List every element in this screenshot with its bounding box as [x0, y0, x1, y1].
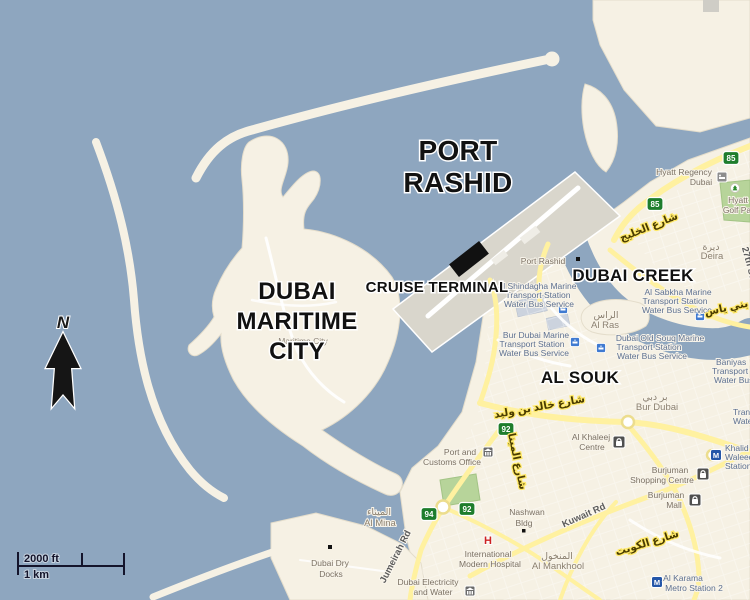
shopping-bag-icon: [613, 436, 625, 448]
water-bus-icon: [571, 338, 580, 347]
metro-glyph: M: [654, 578, 660, 587]
annotation-maritime-city-3: CITY: [269, 338, 325, 365]
label-line: Bur Dubai: [636, 402, 678, 413]
label-line: Mall: [666, 500, 682, 510]
label-line: Al Mankhool: [532, 561, 584, 572]
annotation-maritime-city-1: DUBAI: [258, 278, 336, 305]
roundabout: [437, 501, 450, 514]
label-line: Burjuman: [652, 465, 689, 475]
label-line: Modern Hospital: [459, 559, 521, 569]
shopping-bag-icon: [689, 494, 701, 506]
metro-icon: M: [652, 577, 663, 588]
label-line: Dubai Dry: [311, 558, 350, 568]
label-line: Station: [725, 461, 750, 471]
label-khalid-station: Khalid Waleed Station: [725, 443, 750, 471]
label-line: Hyatt: [728, 195, 748, 205]
label-line: Water Bus Service: [504, 299, 574, 309]
scale-imperial: 2000 ft: [24, 553, 59, 565]
label-line: Al Ras: [591, 320, 619, 331]
label-line: Dubai: [690, 177, 712, 187]
poi-dot: [328, 545, 332, 549]
hotel-icon: [717, 172, 727, 182]
label-line: Water Bus Service: [499, 348, 569, 358]
label-shindagha-station: Al Shindagha Marine Transport Station Wa…: [498, 281, 577, 309]
label-baniyas-station: Baniyas Transport Water Bus: [712, 357, 750, 385]
route-shield-94: 94: [421, 508, 437, 521]
label-line: Docks: [319, 569, 343, 579]
label-line: Water Bus: [733, 416, 750, 426]
annotation-port-rashid-1: PORT: [419, 135, 498, 166]
north-label: N: [57, 313, 70, 332]
label-line: Water Bus Service: [642, 305, 712, 315]
label-line: Centre: [579, 442, 605, 452]
annotation-cruise-terminal: CRUISE TERMINAL: [366, 279, 509, 296]
water-bus-icon: [597, 344, 606, 353]
dubai-port-map: 85 85 94 92 92 M M: [0, 0, 750, 600]
shield-number: 94: [425, 510, 434, 519]
poi-dot: [522, 529, 526, 533]
label-line: Al Mina: [364, 518, 396, 529]
label-line: Golf Pa: [723, 205, 750, 215]
label-line: Water Bus Service: [617, 351, 687, 361]
poi-dot: [576, 257, 580, 261]
label-line: Metro Station 2: [665, 583, 723, 593]
label-line: Port and: [444, 447, 476, 457]
label-line: Al Karama: [663, 573, 703, 583]
building-icon: [465, 586, 475, 596]
label-line: الميناء: [367, 507, 391, 518]
label-al-ras: الراس Al Ras: [591, 310, 619, 331]
metro-glyph: M: [713, 451, 719, 460]
label-line: Burjuman: [648, 490, 685, 500]
route-shield-85: 85: [723, 152, 739, 165]
route-shield-85: 85: [647, 198, 663, 211]
annotation-port-rashid-2: RASHID: [403, 167, 512, 198]
scale-metric: 1 km: [24, 569, 49, 581]
label-line: Water Bus: [714, 375, 750, 385]
label-line: and Water: [414, 587, 453, 597]
label-line: Hyatt Regency: [656, 167, 712, 177]
tree-icon: [731, 184, 740, 193]
label-port-rashid-small: Port Rashid: [521, 256, 566, 266]
label-line: International: [465, 549, 512, 559]
label-edge-station: Transport Water Bus: [733, 407, 750, 426]
label-line: Customs Office: [423, 457, 481, 467]
annotation-maritime-city-2: MARITIME: [236, 308, 357, 335]
map-canvas: 85 85 94 92 92 M M: [0, 0, 750, 600]
metro-icon: M: [711, 450, 722, 461]
label-sabkha-station: Al Sabkha Marine Transport Station Water…: [642, 287, 712, 315]
label-line: Bldg: [515, 518, 532, 528]
label-line: Shopping Centre: [630, 475, 694, 485]
annotation-dubai-creek: DUBAI CREEK: [572, 266, 694, 285]
label-bur-dubai-station: Bur Dubai Marine Transport Station Water…: [499, 330, 569, 358]
route-shield-92: 92: [459, 503, 475, 516]
hospital-icon: H: [484, 535, 492, 547]
shield-number: 92: [463, 505, 472, 514]
label-line: Deira: [701, 251, 724, 262]
shopping-bag-icon: [697, 468, 709, 480]
shield-number: 85: [727, 154, 736, 163]
corner-quay: [703, 0, 719, 12]
label-line: Nashwan: [509, 507, 545, 517]
breakwater-knob: [545, 52, 560, 67]
building-icon: [483, 447, 493, 457]
annotation-al-souk: AL SOUK: [541, 368, 620, 387]
roundabout: [622, 416, 634, 428]
label-line: Dubai Electricity: [398, 577, 460, 587]
label-line: Al Khaleej: [572, 432, 610, 442]
shield-number: 85: [651, 200, 660, 209]
